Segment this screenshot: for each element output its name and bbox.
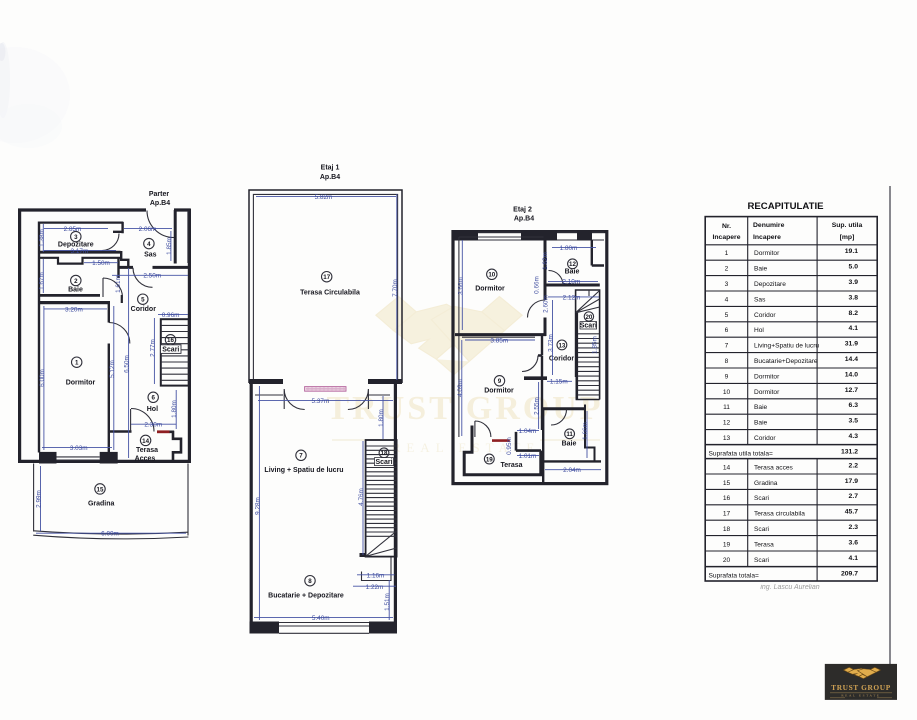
- svg-text:3.20m: 3.20m: [65, 306, 83, 313]
- svg-text:5: 5: [725, 312, 729, 319]
- svg-text:1.01m: 1.01m: [519, 453, 537, 460]
- svg-text:0.96m: 0.96m: [162, 312, 180, 319]
- svg-text:Baie: Baie: [754, 266, 768, 273]
- svg-text:19.1: 19.1: [845, 248, 858, 255]
- svg-text:Etaj 1: Etaj 1: [321, 165, 340, 172]
- svg-text:Ap.B4: Ap.B4: [514, 216, 534, 223]
- svg-text:18: 18: [381, 450, 388, 457]
- svg-text:2.55m: 2.55m: [534, 397, 541, 415]
- svg-text:4.1: 4.1: [849, 555, 859, 562]
- svg-text:16: 16: [167, 337, 174, 344]
- svg-text:Sas: Sas: [754, 296, 766, 303]
- svg-text:1.67m: 1.67m: [38, 272, 45, 290]
- svg-text:10: 10: [723, 389, 731, 396]
- svg-text:Terasa Circulabila: Terasa Circulabila: [300, 289, 360, 296]
- svg-text:3.8: 3.8: [849, 294, 859, 301]
- svg-text:19: 19: [486, 456, 493, 463]
- svg-text:Baie: Baie: [562, 440, 577, 447]
- svg-text:3: 3: [74, 234, 78, 241]
- svg-text:3: 3: [725, 281, 729, 288]
- svg-text:Coridor: Coridor: [754, 435, 776, 442]
- svg-text:12.7: 12.7: [845, 387, 858, 394]
- svg-text:3.73m: 3.73m: [548, 334, 555, 352]
- svg-text:4.1: 4.1: [849, 325, 859, 332]
- svg-text:5.12m: 5.12m: [109, 360, 116, 378]
- svg-text:Incapere: Incapere: [753, 234, 781, 241]
- svg-text:2.60m: 2.60m: [543, 295, 550, 313]
- svg-text:Suprafata totala=: Suprafata totala=: [709, 572, 760, 579]
- svg-text:REAL ESTATE: REAL ESTATE: [841, 694, 880, 698]
- svg-text:3.6: 3.6: [849, 539, 859, 546]
- svg-text:6.00m: 6.00m: [101, 531, 119, 538]
- svg-text:1.62m: 1.62m: [542, 252, 549, 270]
- svg-text:1.66m: 1.66m: [582, 422, 589, 440]
- svg-text:16: 16: [723, 495, 731, 502]
- svg-text:1.38m: 1.38m: [38, 229, 45, 247]
- svg-text:Bucatarie+Depozitare: Bucatarie+Depozitare: [754, 358, 818, 365]
- svg-text:14.4: 14.4: [845, 356, 858, 363]
- svg-text:Hol: Hol: [754, 327, 764, 334]
- svg-text:17: 17: [323, 274, 330, 281]
- svg-text:1.16m: 1.16m: [367, 572, 385, 579]
- svg-text:209.7: 209.7: [841, 570, 858, 577]
- svg-text:Sas: Sas: [144, 252, 157, 259]
- svg-text:9.28m: 9.28m: [254, 497, 261, 515]
- svg-text:13: 13: [723, 435, 731, 442]
- svg-text:5.40m: 5.40m: [312, 615, 330, 622]
- svg-text:9: 9: [498, 378, 502, 385]
- svg-text:3.17m: 3.17m: [71, 248, 89, 255]
- svg-text:14: 14: [142, 438, 149, 445]
- svg-text:Bucatarie + Depozitare: Bucatarie + Depozitare: [268, 593, 344, 600]
- svg-text:11: 11: [723, 404, 730, 411]
- svg-text:11: 11: [566, 431, 573, 438]
- svg-text:Gradina: Gradina: [754, 480, 778, 487]
- svg-text:2.3: 2.3: [849, 524, 859, 531]
- svg-text:1: 1: [725, 250, 729, 257]
- svg-text:6.3: 6.3: [849, 402, 859, 409]
- svg-text:0.66m: 0.66m: [534, 276, 541, 294]
- svg-text:2.50m: 2.50m: [143, 273, 161, 280]
- svg-text:12: 12: [569, 261, 576, 268]
- svg-text:45.7: 45.7: [845, 509, 858, 516]
- svg-text:4: 4: [725, 296, 729, 303]
- svg-text:Scari: Scari: [580, 323, 597, 330]
- svg-text:ing. Lascu Aurelian: ing. Lascu Aurelian: [760, 584, 819, 591]
- svg-text:Parter: Parter: [149, 191, 170, 198]
- svg-text:Acces: Acces: [135, 456, 156, 463]
- svg-text:Baie: Baie: [68, 286, 83, 293]
- svg-text:Terasa: Terasa: [136, 447, 158, 454]
- svg-text:Scari: Scari: [754, 495, 770, 502]
- svg-text:6: 6: [725, 327, 729, 334]
- svg-text:131.2: 131.2: [841, 448, 858, 455]
- svg-text:17: 17: [723, 511, 731, 518]
- svg-text:0.95m: 0.95m: [506, 437, 513, 455]
- svg-text:Dormitor: Dormitor: [754, 250, 780, 257]
- svg-text:Suprafata utila totala=: Suprafata utila totala=: [709, 450, 773, 457]
- svg-text:4.76m: 4.76m: [358, 488, 365, 506]
- svg-text:1: 1: [75, 360, 79, 367]
- svg-text:Dormitor: Dormitor: [484, 388, 514, 395]
- svg-text:7: 7: [725, 343, 729, 350]
- svg-text:TRUST GROUP: TRUST GROUP: [831, 683, 891, 692]
- svg-text:1.50m: 1.50m: [92, 260, 110, 267]
- svg-text:Baie: Baie: [565, 269, 580, 276]
- svg-text:3.85m: 3.85m: [490, 337, 508, 344]
- svg-text:Ap.B4: Ap.B4: [150, 200, 170, 207]
- svg-text:1.85m: 1.85m: [166, 237, 173, 255]
- svg-text:Nr.: Nr.: [722, 223, 731, 230]
- svg-text:2.2: 2.2: [849, 462, 859, 469]
- svg-text:Scari: Scari: [162, 346, 179, 353]
- svg-text:6: 6: [151, 395, 155, 402]
- svg-text:1.22m: 1.22m: [366, 584, 384, 591]
- svg-text:6.50m: 6.50m: [124, 355, 131, 373]
- svg-text:Terasa: Terasa: [500, 462, 522, 469]
- svg-text:Coridor: Coridor: [131, 306, 157, 313]
- svg-text:15: 15: [97, 486, 104, 493]
- svg-text:1.15m: 1.15m: [550, 379, 568, 386]
- svg-text:Living+Spatiu de lucru: Living+Spatiu de lucru: [754, 343, 819, 350]
- svg-text:7.70m: 7.70m: [392, 279, 399, 297]
- svg-text:2.06m: 2.06m: [139, 226, 157, 233]
- svg-text:Sup. utila: Sup. utila: [832, 222, 863, 229]
- svg-text:Gradina: Gradina: [88, 500, 115, 507]
- svg-text:Dormitor: Dormitor: [754, 389, 780, 396]
- svg-text:1.85m: 1.85m: [592, 336, 599, 354]
- svg-text:2.12m: 2.12m: [563, 294, 581, 301]
- svg-text:5.0: 5.0: [849, 264, 859, 271]
- svg-text:Scari: Scari: [754, 557, 770, 564]
- svg-text:10: 10: [488, 272, 495, 279]
- svg-text:RECAPITULATIE: RECAPITULATIE: [747, 201, 824, 212]
- svg-text:3.03m: 3.03m: [70, 445, 88, 452]
- svg-text:Ap.B4: Ap.B4: [320, 174, 340, 181]
- svg-text:Baie: Baie: [754, 420, 768, 427]
- svg-text:2: 2: [725, 266, 729, 273]
- svg-text:17.9: 17.9: [845, 478, 858, 485]
- svg-text:3.66m: 3.66m: [457, 277, 464, 295]
- svg-text:2.04m: 2.04m: [563, 467, 581, 474]
- svg-text:19: 19: [723, 541, 731, 548]
- svg-text:2.99m: 2.99m: [36, 490, 43, 508]
- svg-text:9: 9: [725, 373, 729, 380]
- svg-text:1.80m: 1.80m: [560, 245, 578, 252]
- svg-text:1.51m: 1.51m: [384, 593, 391, 611]
- svg-text:13: 13: [558, 342, 565, 349]
- svg-text:1.04m: 1.04m: [519, 428, 537, 435]
- svg-text:8: 8: [308, 578, 312, 585]
- svg-text:8.2: 8.2: [849, 310, 859, 317]
- svg-text:Baie: Baie: [754, 404, 768, 411]
- svg-text:Depozitare: Depozitare: [754, 281, 786, 288]
- svg-text:5.82m: 5.82m: [315, 194, 333, 201]
- svg-text:Scari: Scari: [754, 526, 770, 533]
- svg-text:20: 20: [585, 314, 592, 321]
- svg-text:12: 12: [723, 420, 731, 427]
- svg-text:18: 18: [723, 526, 731, 533]
- svg-text:[mp]: [mp]: [840, 234, 855, 241]
- svg-text:2.7: 2.7: [849, 493, 859, 500]
- svg-text:20: 20: [723, 557, 731, 564]
- svg-text:31.9: 31.9: [845, 341, 858, 348]
- svg-text:Scari: Scari: [375, 459, 392, 466]
- svg-text:2: 2: [74, 278, 78, 285]
- svg-text:14: 14: [723, 464, 731, 471]
- svg-text:Terasa: Terasa: [754, 541, 774, 548]
- svg-text:3.9: 3.9: [849, 279, 859, 286]
- svg-text:1.80m: 1.80m: [378, 409, 385, 427]
- svg-text:7: 7: [299, 453, 303, 460]
- svg-text:1.80m: 1.80m: [171, 400, 178, 418]
- svg-text:3.5: 3.5: [849, 418, 859, 425]
- svg-text:Denumire: Denumire: [753, 222, 785, 229]
- svg-text:4: 4: [147, 241, 151, 248]
- svg-text:Living + Spatiu de lucru: Living + Spatiu de lucru: [264, 467, 343, 474]
- svg-text:5.37m: 5.37m: [312, 398, 330, 405]
- svg-text:4.09m: 4.09m: [457, 379, 464, 397]
- svg-text:15: 15: [723, 480, 731, 487]
- svg-text:5: 5: [141, 297, 145, 304]
- svg-text:Hol: Hol: [147, 406, 158, 413]
- svg-text:Etaj 2: Etaj 2: [513, 207, 532, 214]
- svg-text:Incapere: Incapere: [713, 234, 741, 241]
- svg-text:6.00m: 6.00m: [39, 369, 46, 387]
- svg-text:8: 8: [725, 358, 729, 365]
- svg-text:1.61m: 1.61m: [115, 275, 122, 293]
- svg-text:Terasa acces: Terasa acces: [754, 464, 794, 471]
- svg-text:2.85m: 2.85m: [64, 226, 82, 233]
- svg-text:4.3: 4.3: [849, 433, 859, 440]
- svg-text:Dormitor: Dormitor: [475, 286, 505, 293]
- svg-text:2.77m: 2.77m: [149, 339, 156, 357]
- svg-text:Dormitor: Dormitor: [66, 379, 96, 386]
- svg-text:Coridor: Coridor: [754, 312, 776, 319]
- svg-text:2.30m: 2.30m: [144, 422, 162, 429]
- svg-text:14.0: 14.0: [845, 371, 858, 378]
- svg-text:2.10m: 2.10m: [562, 278, 580, 285]
- svg-text:Terasa circulabila: Terasa circulabila: [754, 511, 805, 518]
- svg-text:Dormitor: Dormitor: [754, 373, 780, 380]
